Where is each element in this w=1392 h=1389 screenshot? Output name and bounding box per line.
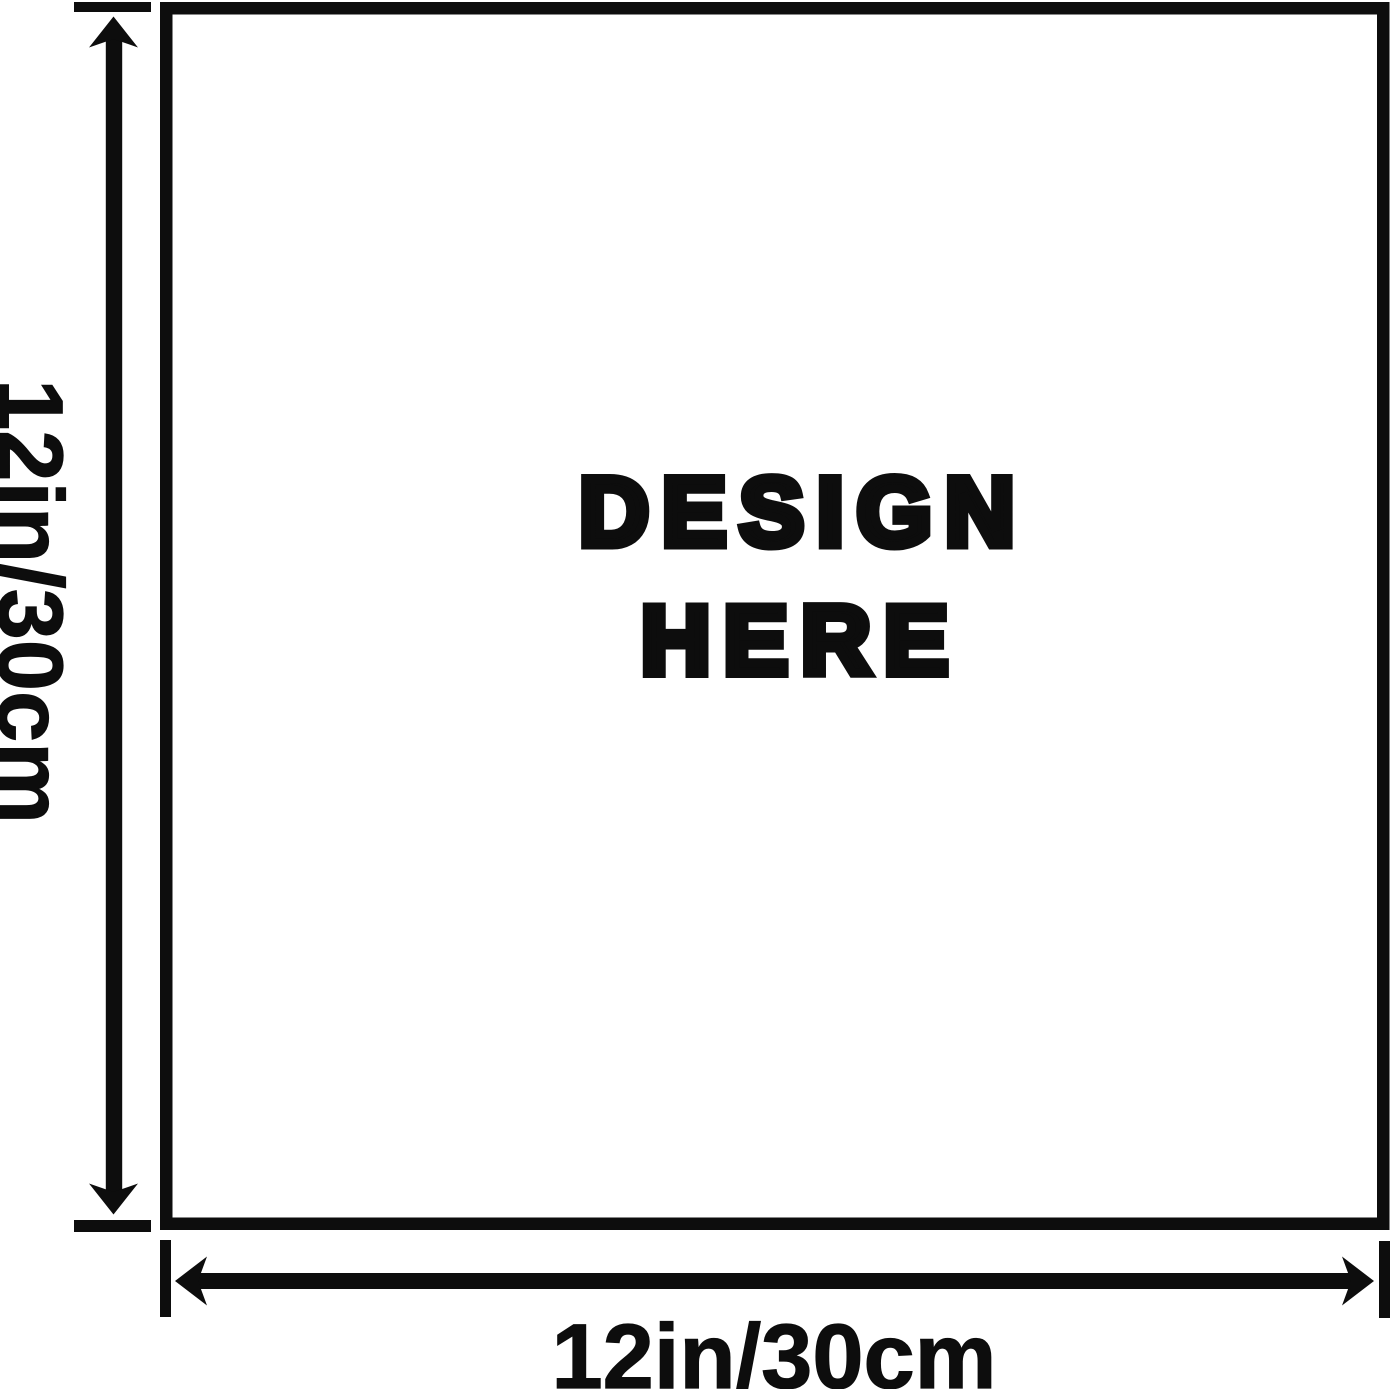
svg-text:DESIGN: DESIGN [579,459,1027,566]
svg-text:HERE: HERE [641,587,961,694]
svg-text:12in/30cm: 12in/30cm [552,1306,997,1389]
svg-text:12in/30cm: 12in/30cm [0,379,81,824]
